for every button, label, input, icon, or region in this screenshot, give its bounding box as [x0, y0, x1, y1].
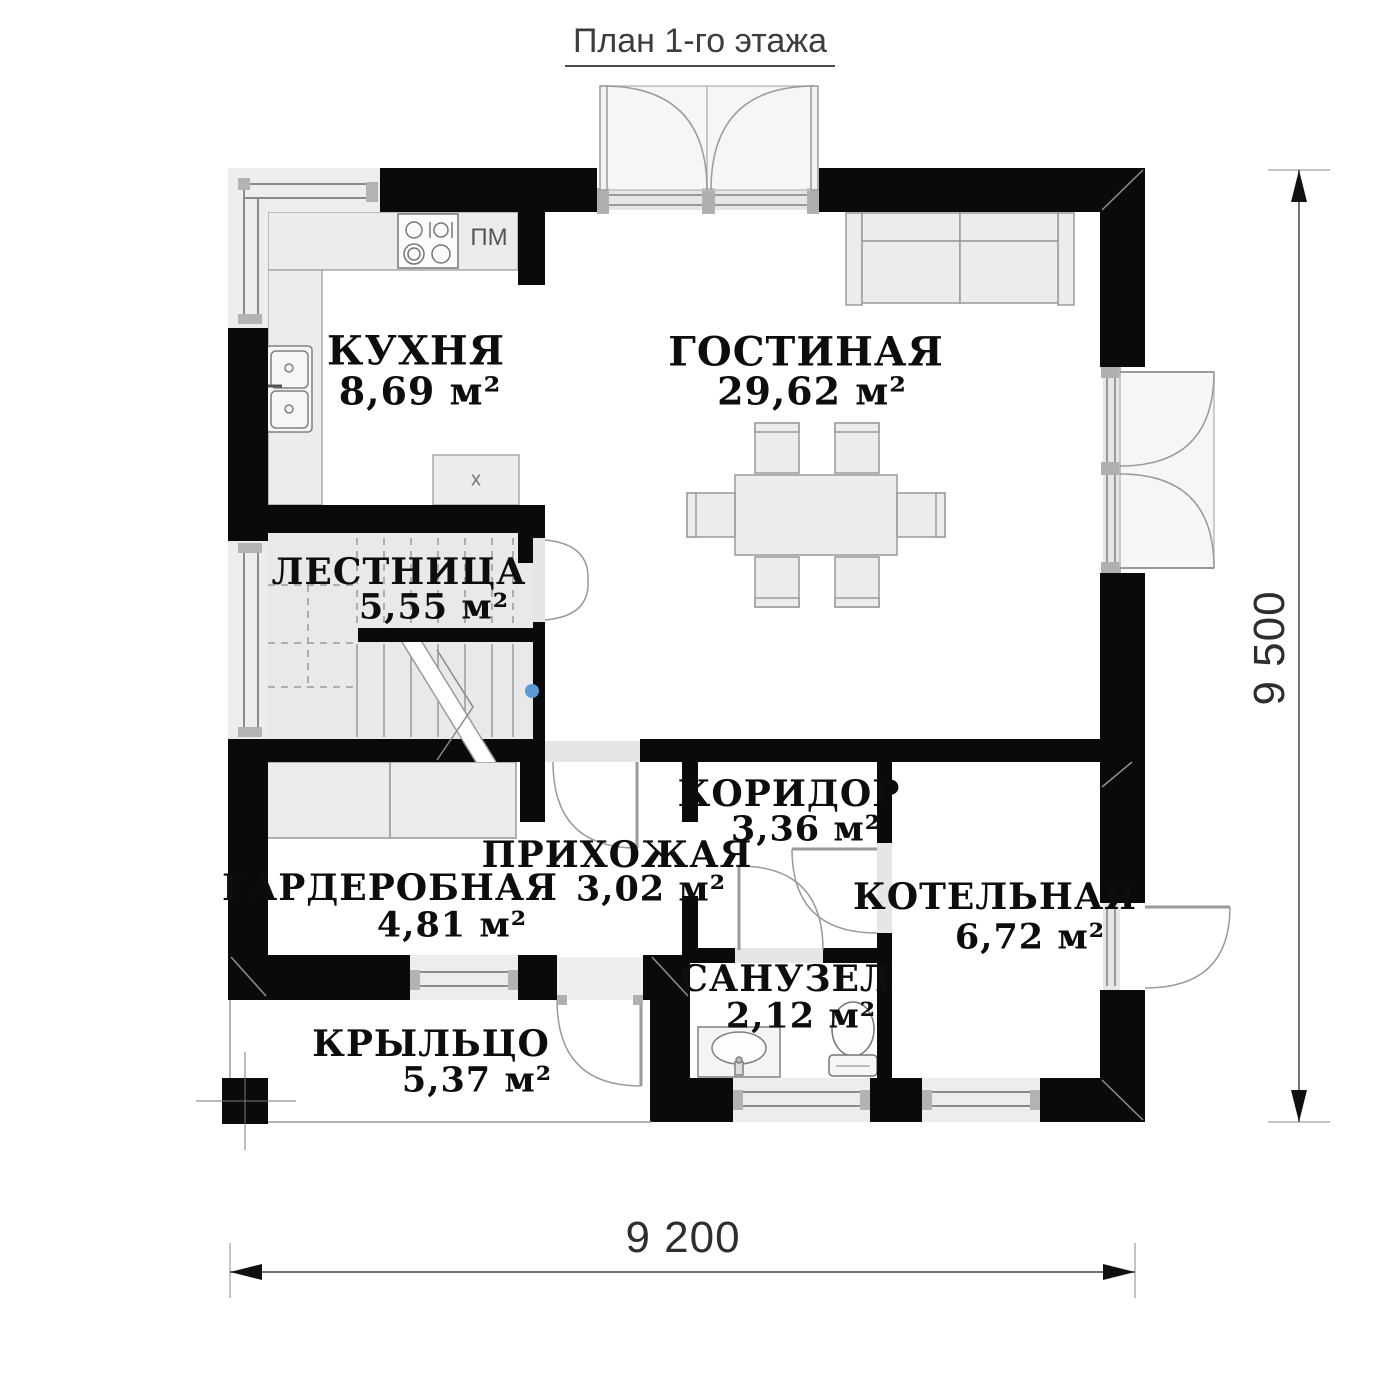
selection-handle-dot[interactable] [525, 684, 539, 698]
room-area-porch: 5,37 м² [402, 1060, 552, 1101]
room-area-hallway: 3,02 м² [576, 869, 726, 910]
chair-icon [755, 423, 799, 473]
room-area-bathroom: 2,12 м² [726, 996, 876, 1037]
chair-icon [897, 493, 945, 537]
stove-icon [398, 214, 458, 268]
room-area-boiler: 6,72 м² [955, 917, 1105, 958]
chair-icon [835, 557, 879, 607]
room-area-wardrobe: 4,81 м² [377, 905, 527, 946]
room-label-kitchen: КУХНЯ [327, 328, 505, 375]
french-door-top [597, 86, 819, 214]
stairs-window [228, 541, 268, 739]
chair-icon [687, 493, 735, 537]
dishwasher-label: ПМ [470, 224, 507, 252]
floor-plan-drawing [0, 0, 1400, 1400]
room-area-kitchen: 8,69 м² [339, 369, 501, 414]
wardrobe-window [410, 955, 518, 1000]
room-area-corridor: 3,36 м² [731, 809, 881, 850]
dimension-width-value: 9 200 [625, 1213, 740, 1263]
dimension-height-value: 9 500 [1245, 590, 1295, 705]
room-area-stairs: 5,55 м² [359, 587, 509, 628]
french-door-right [1101, 367, 1214, 573]
room-label-boiler: КОТЕЛЬНАЯ [853, 876, 1137, 918]
bathroom-window [733, 1078, 870, 1122]
sofa-icon [846, 213, 1074, 305]
room-label-wardrobe: ГАРДЕРОБНАЯ [222, 867, 558, 909]
fridge-mark-label: x [471, 469, 481, 492]
room-area-living: 29,62 м² [717, 369, 907, 414]
chair-icon [755, 557, 799, 607]
chair-icon [835, 423, 879, 473]
closet-icon [262, 762, 516, 838]
floor-plan-canvas: План 1-го этажа КУХНЯ 8,69 м² ГОСТИНАЯ 2… [0, 0, 1400, 1400]
boiler-window [922, 1078, 1040, 1122]
room-label-bathroom: САНУЗЕЛ [679, 958, 892, 1000]
page-title: План 1-го этажа [565, 22, 835, 67]
